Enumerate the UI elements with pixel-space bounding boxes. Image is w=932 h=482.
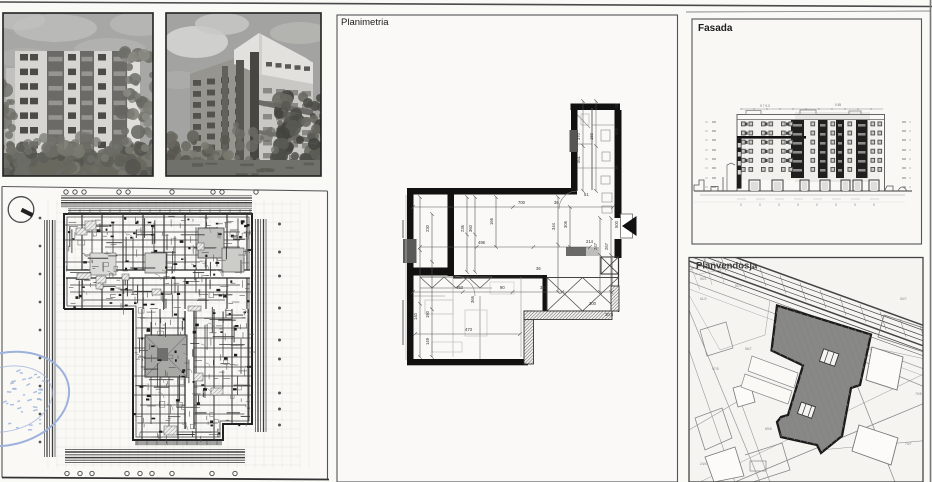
svg-text:5 85: 5 85 xyxy=(835,103,841,107)
svg-text:70/5: 70/5 xyxy=(915,392,922,396)
svg-text:0: 0 xyxy=(797,203,799,207)
svg-text:700: 700 xyxy=(518,200,526,205)
svg-text:360: 360 xyxy=(468,224,473,232)
svg-text:61/2: 61/2 xyxy=(700,297,707,301)
svg-text:473: 473 xyxy=(465,327,473,332)
svg-text:370: 370 xyxy=(576,132,581,140)
svg-text:166: 166 xyxy=(489,217,494,225)
svg-text:50/7: 50/7 xyxy=(900,297,907,301)
svg-text:36: 36 xyxy=(536,266,541,271)
svg-text:0: 0 xyxy=(740,203,742,207)
svg-text:306: 306 xyxy=(563,220,568,228)
svg-text:496: 496 xyxy=(478,240,486,245)
svg-text:36: 36 xyxy=(554,200,559,205)
svg-text:500: 500 xyxy=(614,220,619,228)
svg-text:Planvendosja: Planvendosja xyxy=(696,261,758,272)
svg-text:91/3: 91/3 xyxy=(735,284,742,288)
svg-text:149: 149 xyxy=(425,337,430,345)
svg-text:453: 453 xyxy=(456,285,464,290)
svg-text:230: 230 xyxy=(425,224,430,232)
svg-text:0: 0 xyxy=(816,203,818,207)
svg-text:56/7: 56/7 xyxy=(745,347,752,351)
svg-text:0: 0 xyxy=(778,203,780,207)
svg-text:236: 236 xyxy=(460,224,465,232)
svg-text:267: 267 xyxy=(604,242,609,250)
svg-text:Planimetria: Planimetria xyxy=(341,17,389,28)
svg-text:74/7: 74/7 xyxy=(905,442,912,446)
svg-text:214: 214 xyxy=(586,239,594,244)
svg-text:28: 28 xyxy=(614,103,619,108)
svg-text:0: 0 xyxy=(759,203,761,207)
svg-text:16: 16 xyxy=(614,165,619,170)
svg-text:24/4: 24/4 xyxy=(700,462,707,466)
svg-text:061: 061 xyxy=(576,155,581,163)
svg-text:51: 51 xyxy=(584,192,589,197)
svg-text:97/5: 97/5 xyxy=(712,367,719,371)
svg-text:344: 344 xyxy=(551,222,556,230)
svg-text:310: 310 xyxy=(540,285,548,290)
svg-text:190: 190 xyxy=(425,310,430,318)
svg-text:160: 160 xyxy=(589,132,594,140)
svg-text:90: 90 xyxy=(500,285,505,290)
svg-text:Fasada: Fasada xyxy=(698,23,733,34)
svg-text:0: 0 xyxy=(835,203,837,207)
svg-text:300: 300 xyxy=(589,301,597,306)
svg-text:247: 247 xyxy=(593,242,598,250)
svg-text:500: 500 xyxy=(614,127,619,135)
svg-text:5 7 5.3: 5 7 5.3 xyxy=(760,104,770,108)
svg-text:366: 366 xyxy=(470,295,475,303)
svg-text:0: 0 xyxy=(854,203,856,207)
svg-text:89/8: 89/8 xyxy=(765,427,772,431)
svg-text:30.5: 30.5 xyxy=(605,312,614,317)
svg-text:50/1: 50/1 xyxy=(700,277,707,281)
svg-text:140: 140 xyxy=(413,312,418,320)
svg-text:0: 0 xyxy=(873,203,875,207)
